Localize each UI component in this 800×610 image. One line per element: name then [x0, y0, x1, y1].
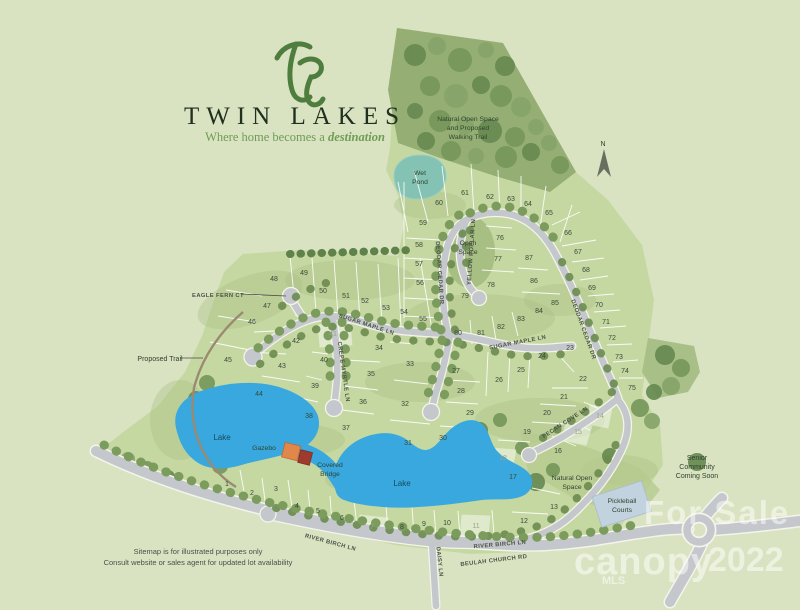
lot-number-48: 48	[270, 276, 278, 283]
gazebo-label: Gazebo	[252, 445, 276, 452]
lot-number-47: 47	[263, 303, 271, 310]
eagle-fern-ct-label: EAGLE FERN CT	[192, 293, 244, 299]
lot-number-84: 84	[535, 308, 543, 315]
pickleball-label: Pickleball	[608, 498, 637, 505]
senior-community-label: Senior	[687, 455, 708, 462]
lot-number-75: 75	[628, 385, 636, 392]
lot-number-45: 45	[224, 357, 232, 364]
proposed-trail-label: Proposed Trail	[137, 356, 183, 363]
lot-number-34: 34	[375, 345, 383, 352]
twin-lakes-monogram	[277, 44, 323, 105]
natural-open-space-label: Natural Open Space	[437, 116, 499, 123]
lot-number-42: 42	[292, 338, 300, 345]
covered-bridge-marker	[298, 450, 313, 466]
lot-number-53: 53	[382, 305, 390, 312]
lot-number-2: 2	[250, 490, 254, 497]
lot-number-65: 65	[545, 210, 553, 217]
svg-text:N: N	[600, 141, 605, 148]
lot-number-30: 30	[439, 435, 447, 442]
lot-number-23: 23	[566, 345, 574, 352]
lot-number-1: 1	[225, 481, 229, 488]
lot-number-12: 12	[520, 518, 528, 525]
lot-number-76: 76	[496, 235, 504, 242]
lot-number-8: 8	[400, 524, 404, 531]
lot-number-55: 55	[419, 316, 427, 323]
lot-number-18: 18	[499, 455, 507, 462]
lot-number-5: 5	[316, 508, 320, 515]
lot-number-74: 74	[621, 368, 629, 375]
lot-number-54: 54	[400, 309, 408, 316]
watermark-year: 2022	[708, 541, 784, 579]
lot-number-49: 49	[300, 270, 308, 277]
lot-number-24: 24	[538, 353, 546, 360]
disclaimer: Sitemap is for illustrated purposes only…	[104, 547, 293, 567]
lot-number-50: 50	[319, 288, 327, 295]
lot-number-43: 43	[278, 363, 286, 370]
svg-text:and Proposed: and Proposed	[447, 125, 490, 132]
lot-number-21: 21	[560, 394, 568, 401]
lot-number-60: 60	[435, 200, 443, 207]
lot-number-87: 87	[525, 255, 533, 262]
lot-number-63: 63	[507, 196, 515, 203]
lot-number-52: 52	[361, 298, 369, 305]
lot-number-9: 9	[422, 521, 426, 528]
svg-text:Walking Trail: Walking Trail	[449, 134, 488, 141]
lot-number-83: 83	[517, 316, 525, 323]
lot-number-79: 79	[461, 293, 469, 300]
watermark-canopy: canopy	[574, 541, 713, 583]
svg-text:Coming Soon: Coming Soon	[676, 473, 719, 480]
lot-number-25: 25	[517, 367, 525, 374]
lot-number-32: 32	[401, 401, 409, 408]
covered-bridge-label: Covered	[317, 462, 343, 469]
lot-number-61: 61	[461, 190, 469, 197]
beulah-church-label: BEULAH CHURCH RD	[460, 554, 527, 568]
lot-number-46: 46	[248, 319, 256, 326]
svg-text:Bridge: Bridge	[320, 471, 340, 478]
lot-number-29: 29	[466, 410, 474, 417]
north-arrow-icon: N	[597, 141, 611, 177]
brand-block: TWIN LAKES Where home becomes a destinat…	[184, 44, 406, 144]
lot-number-57: 57	[415, 261, 423, 268]
lot-number-4: 4	[295, 503, 299, 510]
twin-lakes-sitemap: N Natural Open Space and Proposed Walkin…	[0, 0, 800, 610]
lot-number-77: 77	[494, 256, 502, 263]
natural-open-space-south-label: Natural Open	[552, 475, 593, 482]
lot-number-17: 17	[509, 474, 517, 481]
brand-name: TWIN LAKES	[184, 103, 406, 130]
lot-number-71: 71	[602, 319, 610, 326]
lot-number-7: 7	[370, 524, 374, 531]
svg-text:Sitemap is for illustrated pur: Sitemap is for illustrated purposes only	[134, 547, 263, 556]
lot-number-70: 70	[595, 302, 603, 309]
lake-west-label: Lake	[213, 433, 231, 442]
lot-number-73: 73	[615, 354, 623, 361]
lot-number-22: 22	[579, 376, 587, 383]
lot-number-58: 58	[415, 242, 423, 249]
lot-number-82: 82	[497, 324, 505, 331]
lot-number-69: 69	[588, 285, 596, 292]
svg-text:Consult website or sales agent: Consult website or sales agent for updat…	[104, 558, 293, 567]
lot-number-20: 20	[543, 410, 551, 417]
lot-number-86: 86	[530, 278, 538, 285]
lot-number-41: 41	[329, 331, 337, 338]
lot-number-11: 11	[472, 523, 479, 530]
lot-number-36: 36	[359, 399, 367, 406]
watermark-mls: MLS	[602, 575, 625, 587]
lot-number-27: 27	[452, 368, 460, 375]
lot-number-68: 68	[582, 267, 590, 274]
lot-number-51: 51	[342, 293, 350, 300]
watermark-for-sale: For Sale	[644, 494, 790, 531]
lot-number-14: 14	[596, 413, 604, 420]
brand-tagline: Where home becomes a destination	[205, 130, 385, 144]
lot-number-38: 38	[305, 413, 313, 420]
lot-number-37: 37	[342, 425, 350, 432]
lot-number-78: 78	[487, 282, 495, 289]
svg-text:Space: Space	[562, 484, 581, 491]
lot-number-6: 6	[340, 515, 344, 522]
lot-number-56: 56	[416, 280, 424, 287]
lot-number-13: 13	[550, 504, 558, 511]
lot-number-62: 62	[486, 194, 494, 201]
lot-number-40: 40	[320, 357, 328, 364]
svg-text:Courts: Courts	[612, 507, 633, 514]
lot-number-67: 67	[574, 249, 582, 256]
svg-text:Community: Community	[679, 464, 715, 471]
lot-number-44: 44	[255, 391, 263, 398]
lot-number-35: 35	[367, 371, 375, 378]
sitemap-canvas: N Natural Open Space and Proposed Walkin…	[0, 0, 800, 610]
lot-number-3: 3	[274, 486, 278, 493]
lot-number-28: 28	[457, 388, 465, 395]
lot-number-26: 26	[495, 377, 503, 384]
lot-number-72: 72	[608, 335, 616, 342]
lot-number-15: 15	[574, 429, 582, 436]
lake-east-label: Lake	[393, 479, 411, 488]
lot-number-66: 66	[564, 230, 572, 237]
lot-number-31: 31	[404, 440, 412, 447]
lot-number-81: 81	[477, 330, 485, 337]
lot-number-39: 39	[311, 383, 319, 390]
lot-number-19: 19	[523, 429, 531, 436]
lot-number-59: 59	[419, 220, 427, 227]
lot-number-10: 10	[443, 520, 451, 527]
lot-number-33: 33	[406, 361, 414, 368]
river-birch-label-1: RIVER BIRCH LN	[304, 533, 356, 552]
gazebo-marker	[282, 442, 301, 460]
lot-number-80: 80	[454, 330, 462, 337]
lot-number-16: 16	[554, 448, 562, 455]
svg-text:Pond: Pond	[412, 179, 428, 186]
lot-number-64: 64	[524, 201, 532, 208]
lot-number-85: 85	[551, 300, 559, 307]
wet-pond-label: Wet	[414, 170, 426, 177]
